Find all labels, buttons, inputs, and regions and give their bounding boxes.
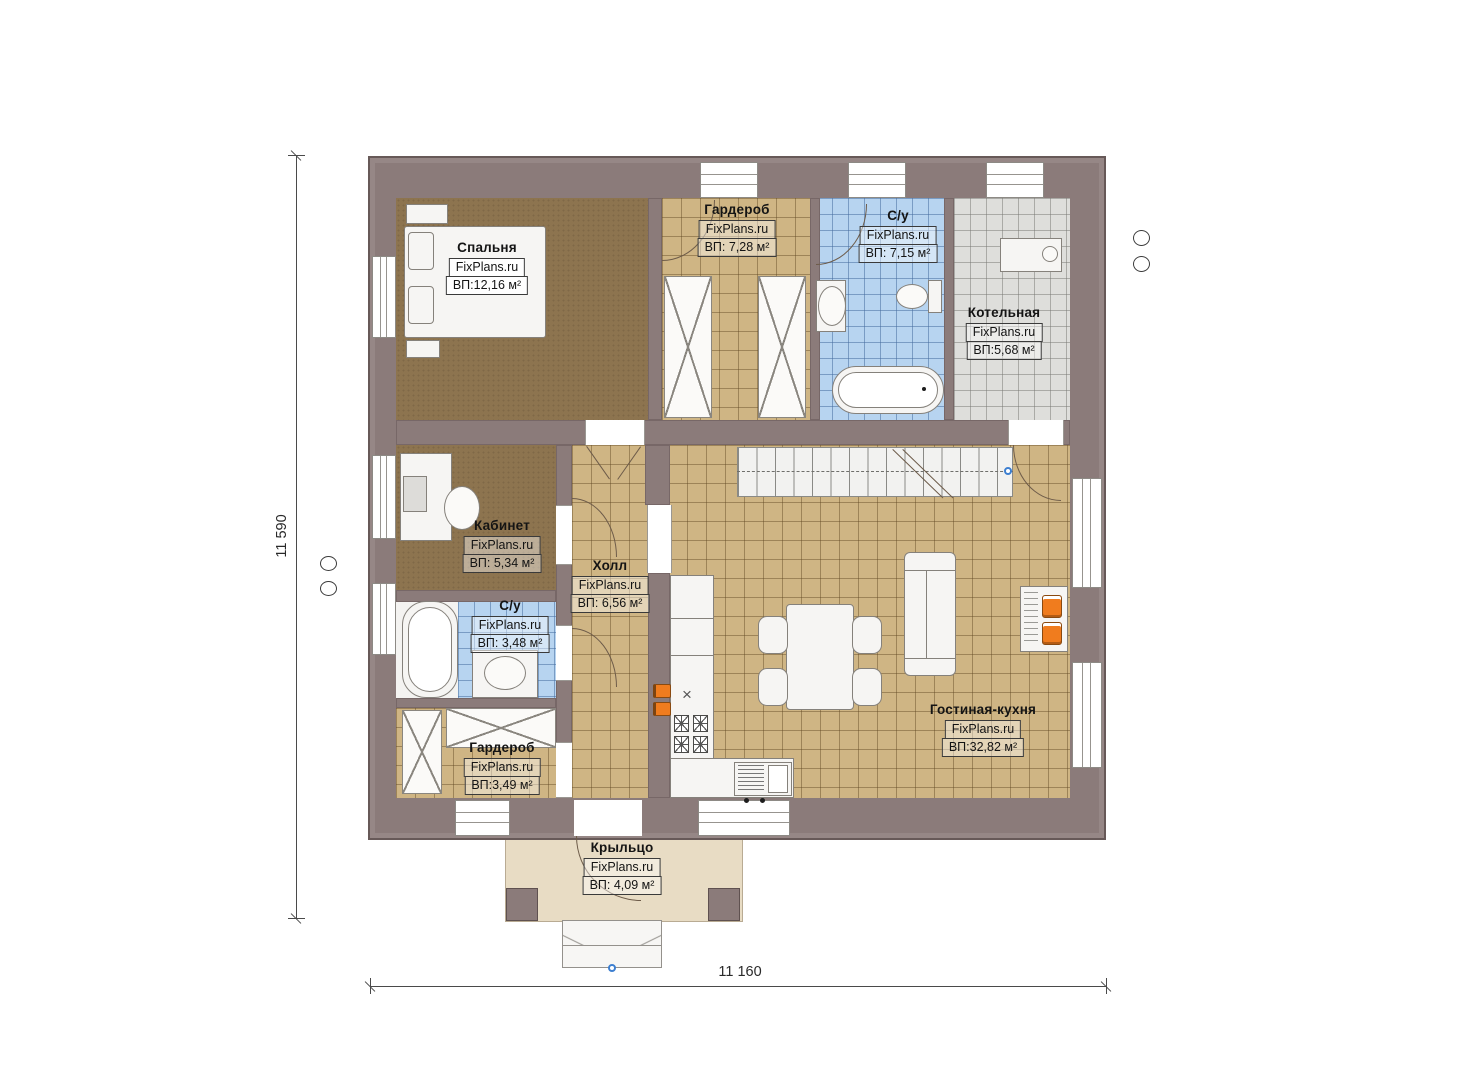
stove-burner-icon — [693, 736, 708, 753]
window — [700, 162, 758, 198]
counter-divider — [670, 655, 714, 656]
room-area: ВП: 5,34 м² — [463, 554, 542, 573]
chair — [758, 668, 788, 706]
room-area: ВП:12,16 м² — [446, 276, 528, 295]
room-name: Кабинет — [463, 518, 542, 534]
chair — [758, 616, 788, 654]
window — [698, 800, 790, 836]
stove-burner-icon — [693, 715, 708, 732]
hob-symbol-icon — [1042, 595, 1062, 618]
room-label-wardrobe-small: Гардероб FixPlans.ru ВП:3,49 м² — [464, 740, 541, 795]
marker-circle-icon — [1133, 230, 1150, 246]
dining-table — [786, 604, 854, 710]
room-area: ВП: 4,09 м² — [583, 876, 662, 895]
hall-top-doorway — [585, 420, 645, 445]
faucet-dot-icon — [744, 798, 749, 803]
interior-wall — [396, 698, 556, 708]
pillow — [408, 286, 434, 324]
room-name: Холл — [571, 558, 650, 574]
stairs — [737, 447, 1013, 497]
hall-floor — [572, 445, 648, 798]
drain-icon — [922, 387, 926, 391]
printer — [403, 476, 427, 512]
room-area: ВП: 7,15 м² — [859, 244, 938, 263]
counter-divider — [670, 618, 714, 619]
nightstand — [406, 340, 440, 358]
dimension-cap — [288, 155, 305, 156]
marker-circle-icon — [320, 556, 337, 571]
window — [455, 800, 510, 836]
floor-plan-canvas: 11 590 11 160 — [0, 0, 1474, 1080]
room-label-porch: Крыльцо FixPlans.ru ВП: 4,09 м² — [583, 840, 662, 895]
stairs-centerline — [737, 471, 1013, 472]
watermark: FixPlans.ru — [699, 220, 776, 239]
kitchen-doorway — [647, 505, 672, 573]
wardrobe-small-doorway — [556, 742, 572, 798]
stairs-start-icon — [1004, 467, 1012, 475]
window — [372, 256, 396, 338]
watermark: FixPlans.ru — [464, 758, 541, 777]
kitchen-counter — [670, 575, 714, 761]
marker-circle-icon — [320, 581, 337, 596]
room-area: ВП: 7,28 м² — [698, 238, 777, 257]
width-dimension-label: 11 160 — [700, 964, 780, 980]
room-label-bathroom-top: С/у FixPlans.ru ВП: 7,15 м² — [859, 208, 938, 263]
room-label-living-kitchen: Гостиная-кухня FixPlans.ru ВП:32,82 м² — [930, 702, 1036, 757]
chair — [852, 668, 882, 706]
dimension-cap — [288, 918, 305, 919]
room-name: С/у — [859, 208, 938, 224]
room-area: ВП: 6,56 м² — [571, 594, 650, 613]
room-name: С/у — [471, 598, 550, 614]
drainboard — [738, 765, 764, 793]
washbasin — [818, 286, 846, 326]
wardrobe-cabinet — [758, 276, 806, 418]
sink-bowl — [768, 765, 788, 793]
watermark: FixPlans.ru — [464, 536, 541, 555]
power-outlet-icon — [653, 684, 671, 698]
vertical-dimension-line — [296, 155, 297, 919]
interior-wall — [396, 420, 1070, 445]
porch-column — [506, 888, 538, 921]
window — [848, 162, 906, 198]
room-name: Гардероб — [698, 202, 777, 218]
room-name: Крыльцо — [583, 840, 662, 856]
entry-point-icon — [608, 964, 616, 972]
interior-wall — [645, 445, 670, 505]
room-label-office: Кабинет FixPlans.ru ВП: 5,34 м² — [463, 518, 542, 573]
room-area: ВП:32,82 м² — [942, 738, 1024, 757]
toilet-tank — [928, 280, 942, 313]
window — [372, 455, 396, 539]
room-label-bedroom: Спальня FixPlans.ru ВП:12,16 м² — [446, 240, 528, 295]
watermark: FixPlans.ru — [472, 616, 549, 635]
stove-burner-icon — [674, 715, 689, 732]
interior-wall — [648, 198, 662, 420]
entrance-doorway — [574, 800, 642, 836]
kitchen-sink-cross: × — [678, 686, 696, 704]
dimension-cap — [1106, 978, 1107, 994]
nightstand — [406, 204, 448, 224]
window — [1072, 478, 1102, 588]
sofa-back-line — [926, 570, 927, 658]
height-dimension-label: 11 590 — [274, 506, 290, 566]
room-area: ВП: 3,48 м² — [471, 634, 550, 653]
stairs-doorway — [1008, 420, 1064, 445]
window — [372, 583, 396, 655]
room-label-wardrobe-top: Гардероб FixPlans.ru ВП: 7,28 м² — [698, 202, 777, 257]
room-area: ВП:3,49 м² — [464, 776, 539, 795]
stove-burner-icon — [674, 736, 689, 753]
sofa-armrest-line — [904, 658, 956, 659]
fireplace-vent-lines — [1024, 592, 1038, 646]
washbasin — [484, 656, 526, 690]
boiler-dial-icon — [1042, 246, 1058, 262]
window — [1072, 662, 1102, 768]
interior-wall — [944, 198, 954, 420]
porch-steps — [562, 920, 662, 968]
room-name: Гардероб — [464, 740, 541, 756]
wardrobe-cabinet — [664, 276, 712, 418]
watermark: FixPlans.ru — [966, 323, 1043, 342]
power-outlet-icon — [653, 702, 671, 716]
toilet-bowl — [896, 284, 928, 309]
room-area: ВП:5,68 м² — [966, 341, 1041, 360]
watermark: FixPlans.ru — [572, 576, 649, 595]
dimension-cap — [370, 978, 371, 994]
wardrobe-cabinet — [402, 710, 442, 794]
pillow — [408, 232, 434, 270]
porch-column — [708, 888, 740, 921]
watermark: FixPlans.ru — [945, 720, 1022, 739]
room-label-hall: Холл FixPlans.ru ВП: 6,56 м² — [571, 558, 650, 613]
room-name: Котельная — [966, 305, 1043, 321]
watermark: FixPlans.ru — [449, 258, 526, 277]
room-name: Гостиная-кухня — [930, 702, 1036, 718]
bathroom-small-doorway — [556, 625, 572, 681]
hob-symbol-icon — [1042, 622, 1062, 645]
faucet-dot-icon — [760, 798, 765, 803]
watermark: FixPlans.ru — [584, 858, 661, 877]
sofa-armrest-line — [904, 570, 956, 571]
window — [986, 162, 1044, 198]
horizontal-dimension-line — [370, 986, 1106, 987]
watermark: FixPlans.ru — [860, 226, 937, 245]
office-doorway — [556, 505, 572, 565]
room-name: Спальня — [446, 240, 528, 256]
chair — [852, 616, 882, 654]
marker-circle-icon — [1133, 256, 1150, 272]
room-label-boiler: Котельная FixPlans.ru ВП:5,68 м² — [966, 305, 1043, 360]
room-label-bathroom-small: С/у FixPlans.ru ВП: 3,48 м² — [471, 598, 550, 653]
bathtub-inner — [408, 607, 452, 692]
